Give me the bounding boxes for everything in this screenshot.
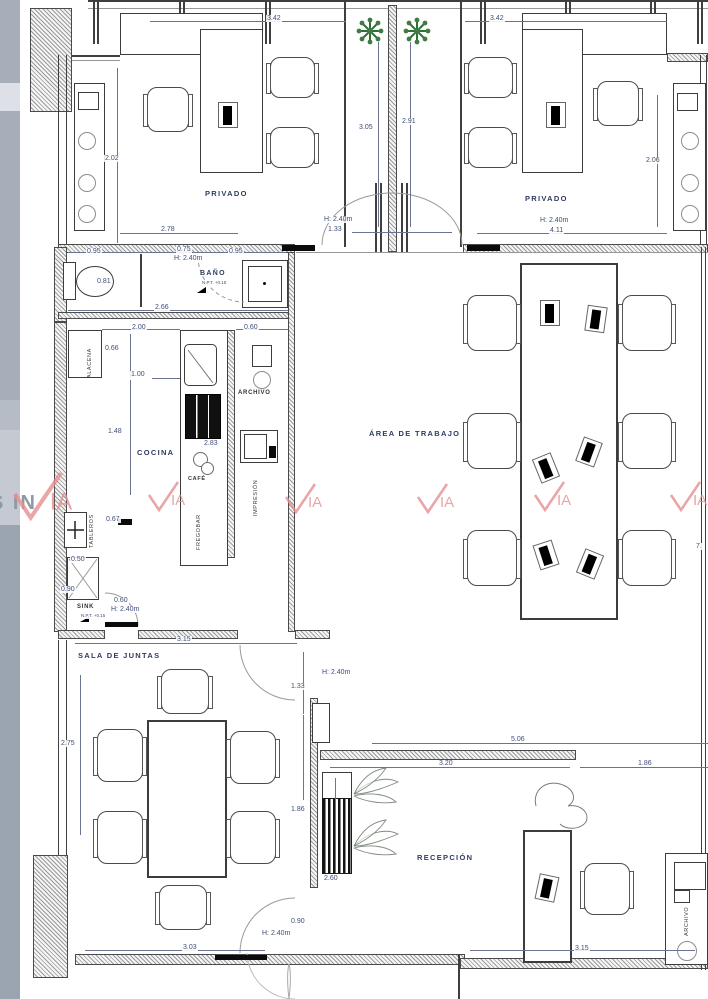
wall-hatched xyxy=(388,5,397,252)
dim-label: 0.95 xyxy=(86,248,102,255)
pantry-cabinet xyxy=(68,330,102,378)
dim-label: 3.05 xyxy=(358,124,374,131)
dim-label: 2.75 xyxy=(60,740,76,747)
fixture-label-alacena: ALACENA xyxy=(87,348,93,378)
file-grid xyxy=(674,862,706,890)
credenza-circle xyxy=(681,132,699,150)
sink-cabinet xyxy=(67,557,99,600)
meeting-chair xyxy=(159,885,207,930)
office-chair xyxy=(147,87,189,132)
npt-label: N.P.T. +0.15 xyxy=(201,281,227,286)
laptop xyxy=(546,102,566,128)
stove xyxy=(185,394,221,439)
dim-label: 2.66 xyxy=(154,304,170,311)
plant-icon xyxy=(354,820,398,855)
fixture-label-sink: SINK xyxy=(77,604,94,610)
bench-planter-top xyxy=(322,772,352,800)
npt-level-icon xyxy=(197,287,206,293)
wall-hatched xyxy=(288,252,295,632)
file-drawer xyxy=(674,890,690,903)
meeting-chair xyxy=(161,669,209,714)
scan-band xyxy=(0,0,20,400)
dim-label: 1.33 xyxy=(290,683,306,690)
dim-line xyxy=(352,232,452,233)
door-threshold xyxy=(215,955,267,960)
credenza-tray xyxy=(677,93,698,111)
wall-hatched xyxy=(58,312,295,319)
desk xyxy=(200,29,263,173)
wall-niche xyxy=(312,703,330,743)
door-leaf xyxy=(406,183,408,252)
dim-label: 0.90 xyxy=(60,586,76,593)
wall-segment xyxy=(72,60,120,61)
window-mullion xyxy=(265,0,271,44)
printer-tray xyxy=(244,434,267,459)
npt-label: N.P.T. +0.15 xyxy=(80,614,106,619)
tree-icon xyxy=(404,18,431,45)
dim-label: 3.42 xyxy=(266,15,282,22)
floor-edge xyxy=(296,252,708,253)
wall-segment xyxy=(58,55,59,247)
dim-label: 2.83 xyxy=(203,440,219,447)
stool xyxy=(253,371,271,389)
via-watermark: IA xyxy=(283,482,327,516)
door-arc xyxy=(240,645,295,700)
guest-chair xyxy=(468,57,513,98)
scan-band-notch xyxy=(0,83,20,111)
dim-line xyxy=(477,233,667,234)
dim-label: 1.33 xyxy=(327,226,343,233)
dim-label: H: 2.40m xyxy=(261,930,291,937)
printer-panel xyxy=(269,446,276,458)
dim-label: 3.20 xyxy=(438,760,454,767)
svg-text:IA: IA xyxy=(50,489,73,516)
dim-label: 0.95 xyxy=(228,248,244,255)
task-chair xyxy=(467,530,517,586)
dim-label: 1.00 xyxy=(130,371,146,378)
dim-label: 0.67 xyxy=(105,516,121,523)
dim-label: 3.03 xyxy=(182,944,198,951)
wall-segment xyxy=(344,0,346,247)
stool xyxy=(677,941,697,961)
wall-hatched xyxy=(75,954,465,965)
dim-label: 0.60 xyxy=(113,597,129,604)
wall-hatched xyxy=(58,630,105,639)
door-arc-dashed xyxy=(198,256,244,302)
dim-label: 1.48 xyxy=(107,428,123,435)
dim-line xyxy=(335,778,336,873)
dim-line xyxy=(150,21,346,22)
svg-text:IA: IA xyxy=(171,492,185,509)
dim-line xyxy=(330,767,570,768)
svg-text:IA: IA xyxy=(557,492,571,509)
wall-segment xyxy=(460,0,462,247)
office-chair xyxy=(597,81,639,126)
room-label-bano: BAÑO xyxy=(200,270,226,277)
laptop xyxy=(218,102,238,128)
door-leaf xyxy=(380,183,382,252)
window-mullion xyxy=(697,0,703,44)
room-label-recepcion: RECEPCIÓN xyxy=(417,854,473,862)
credenza-circle xyxy=(78,174,96,192)
dim-label: 2.78 xyxy=(160,226,176,233)
credenza-circle xyxy=(78,205,96,223)
dim-label: 0.66 xyxy=(104,345,120,352)
guest-chair xyxy=(270,57,315,98)
wall-hatched xyxy=(33,855,68,978)
via-watermark: IA xyxy=(415,482,459,516)
dim-line xyxy=(130,380,131,495)
dim-label: 0.75 xyxy=(176,246,192,253)
fixture-label-impresion: IMPRESIÓN xyxy=(253,480,259,516)
door-leaf xyxy=(375,183,377,252)
scan-band xyxy=(0,525,20,999)
task-chair xyxy=(622,295,672,351)
wall-segment xyxy=(706,55,707,247)
wall-segment xyxy=(66,640,67,855)
room-label-privado-left: PRIVADO xyxy=(205,190,248,198)
window-mullion xyxy=(480,0,486,44)
via-watermark: IA xyxy=(146,480,190,514)
door-leaf xyxy=(401,183,403,252)
reception-chair xyxy=(584,863,630,915)
room-label-cocina: COCINA xyxy=(137,449,174,457)
dim-label: H: 2.40m xyxy=(173,255,203,262)
dim-line xyxy=(372,743,708,744)
dim-line xyxy=(68,310,288,311)
via-watermark: IA xyxy=(532,480,576,514)
fixture-label-archivo: ARCHIVO xyxy=(238,390,271,396)
shower-drain xyxy=(263,282,266,285)
dim-label: 5.06 xyxy=(510,736,526,743)
scan-band xyxy=(0,400,20,430)
dim-label: 4.11 xyxy=(549,227,564,234)
dim-label: 0.81 xyxy=(96,278,112,285)
fixture-label-cafe: CAFÉ xyxy=(188,477,206,483)
meeting-table xyxy=(147,720,227,878)
dim-line xyxy=(75,643,297,644)
desk xyxy=(522,29,583,173)
task-chair xyxy=(622,413,672,469)
dim-label: 3.15 xyxy=(176,636,192,643)
room-label-sala-juntas: SALA DE JUNTAS xyxy=(78,652,160,660)
fixture-label-tableros: TABLEROS xyxy=(89,514,95,548)
dim-label: H: 2.40m xyxy=(539,217,569,224)
dim-label: 7. xyxy=(695,543,703,550)
meeting-chair xyxy=(230,731,276,784)
dim-label: 2.06 xyxy=(645,157,661,164)
credenza-circle xyxy=(78,132,96,150)
task-chair xyxy=(467,413,517,469)
dim-label: H: 2.40m xyxy=(323,216,353,223)
door-arc xyxy=(240,898,295,953)
dim-line xyxy=(303,715,304,800)
laptop xyxy=(540,300,560,326)
archive-box xyxy=(252,345,272,367)
svg-text:IA: IA xyxy=(308,494,322,511)
dim-label: 1.86 xyxy=(290,806,306,813)
dim-line xyxy=(410,42,411,227)
door-leaf-arc xyxy=(288,964,291,999)
door-threshold xyxy=(467,245,500,251)
plant-icon xyxy=(354,768,398,803)
dim-label: 2.60 xyxy=(323,875,339,882)
task-chair xyxy=(467,295,517,351)
door-threshold xyxy=(105,622,138,627)
dim-label: 2.91 xyxy=(401,118,417,125)
dim-line xyxy=(85,950,265,951)
dim-line xyxy=(378,42,379,227)
svg-text:IA: IA xyxy=(440,494,454,511)
meeting-chair xyxy=(230,811,276,864)
dim-label: H: 2.40m xyxy=(321,669,351,676)
tree-icon xyxy=(357,18,384,45)
dim-line xyxy=(152,378,180,379)
guest-chair xyxy=(468,127,513,168)
window-mullion xyxy=(93,0,99,44)
dim-label: H: 2.40m xyxy=(110,606,140,613)
room-label-area-trabajo: ÁREA DE TRABAJO xyxy=(369,430,460,438)
wall-segment xyxy=(72,55,120,57)
laptop xyxy=(584,305,607,334)
floor-plan: 3.42 3.42 2.02 2.78 3.05 2.91 H: 2.40m 1… xyxy=(0,0,708,999)
fixture-label-archivo-recepcion: ARCHIVO xyxy=(684,907,690,936)
dim-line xyxy=(120,233,238,234)
meeting-chair xyxy=(97,811,143,864)
wall-hatched xyxy=(295,630,330,639)
via-watermark: IA xyxy=(10,470,80,524)
svg-text:IA: IA xyxy=(693,492,707,509)
wall-hatched xyxy=(320,750,576,760)
task-chair xyxy=(622,530,672,586)
dim-label: 0.90 xyxy=(290,918,306,925)
room-label-privado-right: PRIVADO xyxy=(525,195,568,203)
dim-label: 3.15 xyxy=(574,945,590,952)
credenza-tray xyxy=(78,92,99,110)
coffee-maker xyxy=(201,462,214,475)
dim-label: 2.00 xyxy=(131,324,147,331)
toilet-tank xyxy=(63,262,76,300)
guest-chair xyxy=(270,127,315,168)
dim-label: 1.86 xyxy=(637,760,653,767)
credenza-circle xyxy=(681,205,699,223)
dim-label: 0.60 xyxy=(243,324,259,331)
credenza-circle xyxy=(681,174,699,192)
wall-segment xyxy=(140,254,142,307)
dim-line xyxy=(580,767,708,768)
wall-hatched xyxy=(667,53,708,62)
via-watermark: IA xyxy=(668,480,708,514)
slat-bench xyxy=(322,798,352,874)
dim-line xyxy=(80,675,81,835)
fridge xyxy=(184,344,217,386)
dim-label: 0.50 xyxy=(70,556,86,563)
wall-segment xyxy=(66,55,67,247)
lounge-chair-outline xyxy=(535,783,587,828)
meeting-chair xyxy=(97,729,143,782)
dim-label: 2.02 xyxy=(104,155,120,162)
fixture-label-fregobar: FREGOBAR xyxy=(196,514,202,550)
door-threshold xyxy=(282,245,315,251)
dim-label: 3.42 xyxy=(489,15,505,22)
